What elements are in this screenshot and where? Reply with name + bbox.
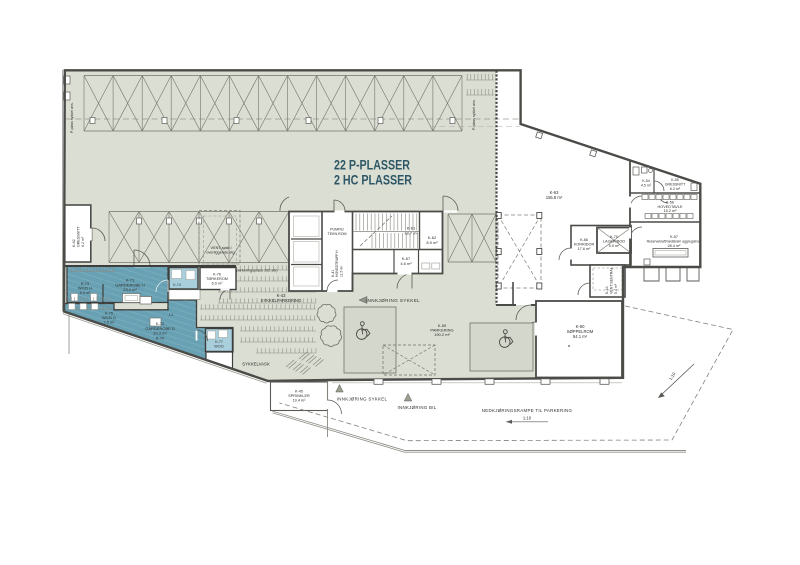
svg-text:17.6 m²: 17.6 m²	[578, 247, 592, 251]
svg-text:K-70: K-70	[156, 335, 165, 340]
svg-text:K-55: K-55	[671, 178, 679, 182]
svg-text:6.2 m²: 6.2 m²	[670, 187, 681, 191]
svg-text:Reservekraft/nødstrøm aggregat: Reservekraft/nødstrøm aggregatrom	[647, 240, 702, 244]
svg-text:2 HC PLASSER: 2 HC PLASSER	[334, 172, 412, 187]
svg-text:SPRINKLER: SPRINKLER	[288, 394, 310, 398]
svg-text:4.6 m²: 4.6 m²	[400, 261, 412, 266]
svg-text:1:10: 1:10	[523, 416, 532, 421]
svg-text:INNKJØRING SYKKEL: INNKJØRING SYKKEL	[366, 298, 420, 303]
svg-text:19.4 m²: 19.4 m²	[293, 399, 307, 403]
svg-text:K-75: K-75	[105, 312, 113, 316]
svg-text:PUMPE/: PUMPE/	[330, 228, 344, 232]
svg-text:KORRIDOR: KORRIDOR	[574, 243, 595, 247]
svg-text:SYKKELVASK: SYKKELVASK	[242, 362, 270, 367]
svg-text:5.0 m²: 5.0 m²	[609, 244, 620, 248]
svg-text:NEDKJØRINGSRAMPE TIL PARKERING: NEDKJØRINGSRAMPE TIL PARKERING	[482, 408, 573, 413]
svg-text:54.1 m²: 54.1 m²	[573, 334, 588, 339]
svg-text:INNKJØRING SYKKEL: INNKJØRING SYKKEL	[337, 397, 388, 402]
svg-text:K-76: K-76	[213, 273, 221, 277]
svg-text:5.4 m²: 5.4 m²	[614, 283, 618, 294]
svg-text:11.5 m²: 11.5 m²	[339, 265, 343, 277]
svg-text:K-66: K-66	[580, 238, 588, 242]
svg-text:K-44: K-44	[605, 286, 609, 294]
svg-text:6.0 m²: 6.0 m²	[80, 291, 91, 295]
svg-text:VENT-sjakt i: VENT-sjakt i	[211, 246, 232, 250]
svg-text:TØRKEROM: TØRKEROM	[206, 277, 228, 281]
svg-text:K-54: K-54	[642, 179, 650, 183]
svg-text:WC/D H: WC/D H	[78, 287, 92, 291]
svg-text:K-74: K-74	[173, 283, 181, 287]
svg-text:WC/D D: WC/D D	[102, 316, 116, 320]
svg-text:K-57: K-57	[670, 235, 678, 239]
svg-text:15.2 m²: 15.2 m²	[664, 209, 678, 213]
svg-text:SYKKELPARKERING: SYKKELPARKERING	[261, 298, 302, 303]
svg-text:GRESSNITT: GRESSNITT	[665, 182, 686, 186]
svg-text:18.7 m²: 18.7 m²	[404, 230, 418, 235]
svg-text:K-56: K-56	[666, 201, 674, 205]
svg-text:28.4 m²: 28.4 m²	[668, 244, 682, 248]
svg-text:6.2 m²: 6.2 m²	[81, 236, 85, 247]
svg-text:K-73: K-73	[81, 282, 89, 286]
svg-text:K-45: K-45	[295, 390, 303, 394]
svg-text:7.5 m²: 7.5 m²	[104, 321, 115, 325]
svg-text:155.8 m²: 155.8 m²	[546, 195, 563, 200]
svg-text:P-plass sykkel ans.: P-plass sykkel ans.	[70, 102, 74, 133]
svg-text:WC/D: WC/D	[214, 344, 224, 348]
svg-text:P-plass sykkel ans.: P-plass sykkel ans.	[472, 99, 476, 130]
svg-text:TEKN.ROM: TEKN.ROM	[328, 232, 347, 236]
svg-text:22 P-PLASSER: 22 P-PLASSER	[334, 158, 410, 173]
svg-text:VENT.SENTRAL: VENT.SENTRAL	[609, 267, 613, 294]
svg-text:K-70: K-70	[610, 235, 618, 239]
svg-text:K-77: K-77	[215, 340, 223, 344]
svg-text:23.4 m²: 23.4 m²	[123, 287, 137, 292]
svg-text:8.9 m²: 8.9 m²	[426, 240, 438, 245]
svg-text:LAGER/BOD: LAGER/BOD	[603, 240, 625, 244]
svg-text:GRESSNITT: GRESSNITT	[76, 226, 80, 247]
svg-text:6.0 m²: 6.0 m²	[212, 282, 223, 286]
svg-text:4.5 m²: 4.5 m²	[641, 183, 652, 187]
svg-text:K-62: K-62	[72, 239, 76, 247]
svg-text:190.2 m²: 190.2 m²	[434, 332, 450, 337]
svg-text:overliggende etg.: overliggende etg.	[206, 251, 235, 255]
svg-text:LJ: LJ	[169, 313, 173, 317]
svg-text:INNKJØRING BIL: INNKJØRING BIL	[397, 405, 436, 410]
